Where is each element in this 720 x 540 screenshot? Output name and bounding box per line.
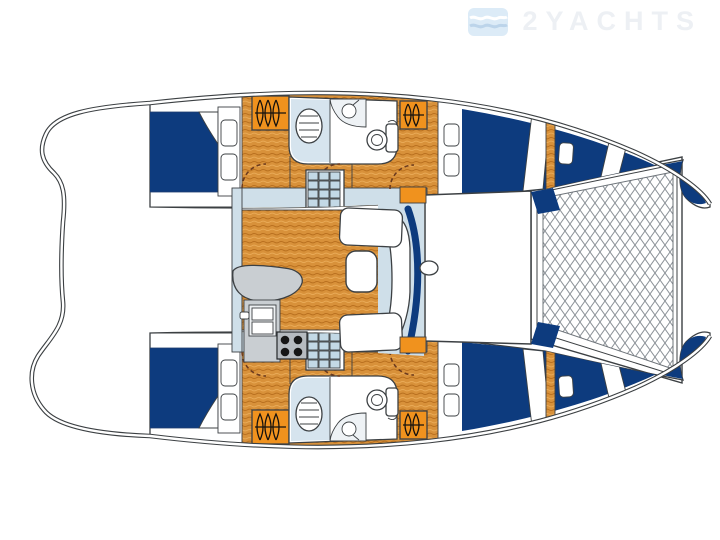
foredeck <box>425 191 531 344</box>
yacht-floorplan-image: 2YACHTS <box>0 0 720 540</box>
saloon <box>232 187 560 362</box>
watermark: 2YACHTS <box>467 6 702 37</box>
deck-locker <box>400 187 426 203</box>
galley-faucet <box>240 312 249 319</box>
floorplan-drawing <box>0 0 720 540</box>
waves-flag-icon <box>467 7 509 37</box>
dinette-sofa-seat <box>339 313 403 353</box>
dinette-sofa-seat <box>339 208 403 248</box>
galley-sink <box>252 322 273 334</box>
dinette-table <box>346 251 377 292</box>
brand-text: 2YACHTS <box>522 6 702 37</box>
mast-base <box>420 261 438 275</box>
galley-sink <box>252 308 273 320</box>
dinette <box>339 208 410 353</box>
stove <box>277 332 307 359</box>
deck-locker <box>400 337 426 353</box>
